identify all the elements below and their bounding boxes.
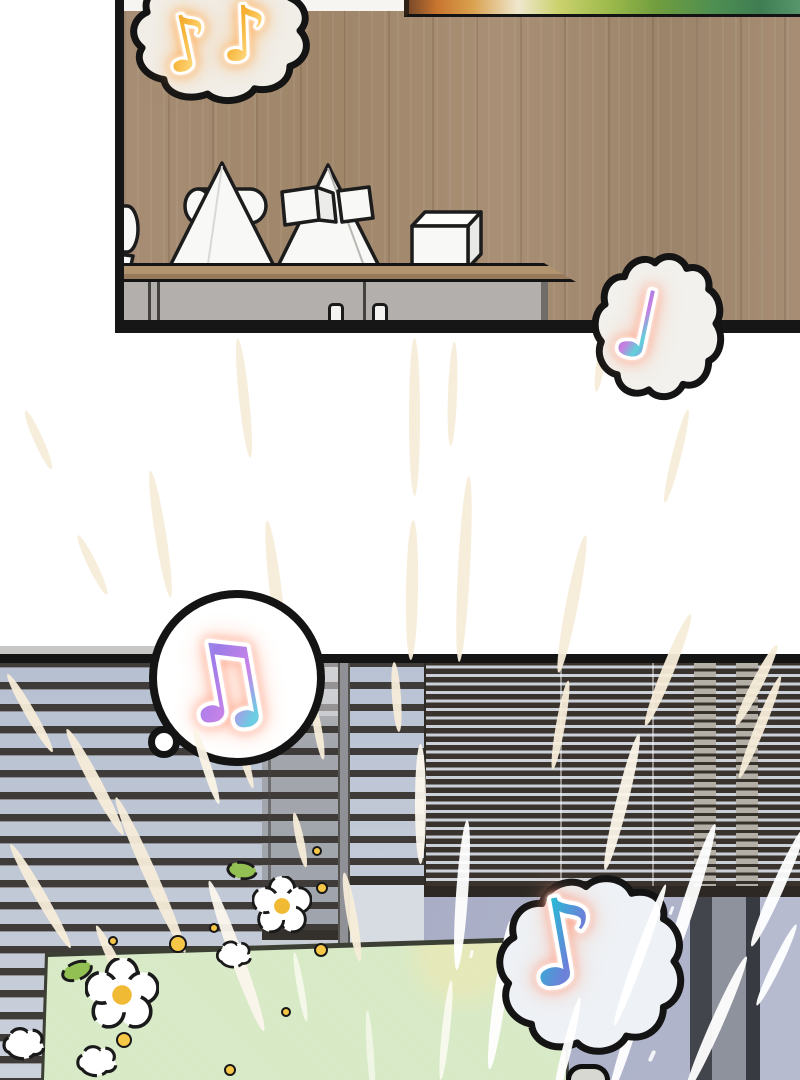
cone-sculpture (170, 163, 274, 270)
blind-cord (560, 660, 562, 886)
framed-painting (404, 0, 800, 17)
piercing-cylinder (198, 189, 266, 223)
svg-text:♪: ♪ (219, 0, 271, 79)
blind-bottom-rail (424, 886, 800, 897)
music-note-gold-icon: ♪ (218, 0, 288, 82)
geometric-sculptures (110, 142, 500, 272)
window-frame-bar (712, 897, 746, 1080)
svg-text:♪: ♪ (154, 0, 220, 92)
cabinet-seam (363, 282, 366, 320)
blind-highlight (262, 660, 345, 716)
blind-ladder-tape (694, 660, 716, 886)
prism-right (338, 187, 373, 222)
cylinder-cap (185, 189, 211, 223)
cabinet (124, 282, 548, 320)
window-glass-edge (760, 897, 800, 1080)
window-frame-bar (690, 897, 712, 1080)
cube-right-side (468, 212, 481, 268)
blind-header-rail (0, 646, 182, 654)
venetian-blinds-small (350, 660, 424, 876)
panel-border-bottom (115, 320, 800, 333)
burst-gap (0, 333, 800, 654)
window-post (338, 660, 350, 948)
comic-page: ♪ ♪ ♩ (0, 0, 800, 1080)
panel-border-left (115, 0, 124, 333)
blind-rail (350, 876, 424, 885)
cube-left (282, 187, 319, 225)
sideboard-shelf (124, 263, 576, 282)
cabinet-handle (372, 303, 388, 325)
cabinet-shadow (541, 282, 548, 320)
cabinet-handle (328, 303, 344, 325)
music-note-gold-icon: ♪ (160, 0, 230, 90)
wood-wall (124, 0, 800, 320)
blind-ladder-tape (736, 660, 758, 886)
panel-window (0, 654, 800, 1080)
wedge-sculpture (117, 254, 133, 270)
panel-border-top (0, 654, 800, 663)
cabinet-seam (157, 282, 160, 320)
window-frame-bar (746, 897, 760, 1080)
blind-cord (268, 660, 271, 944)
blind-rail (262, 930, 338, 940)
cube-right-front (412, 226, 468, 268)
bubble-top-left: ♪ ♪ (132, 0, 300, 98)
ceiling-strip (124, 0, 406, 11)
pyramid-sculpture (277, 165, 380, 268)
cube-right-top (412, 212, 481, 226)
cabinet-seam (148, 282, 151, 320)
blind-cord (652, 660, 654, 886)
cube-left-side (316, 187, 336, 222)
cylinder-sculpture (117, 206, 138, 252)
